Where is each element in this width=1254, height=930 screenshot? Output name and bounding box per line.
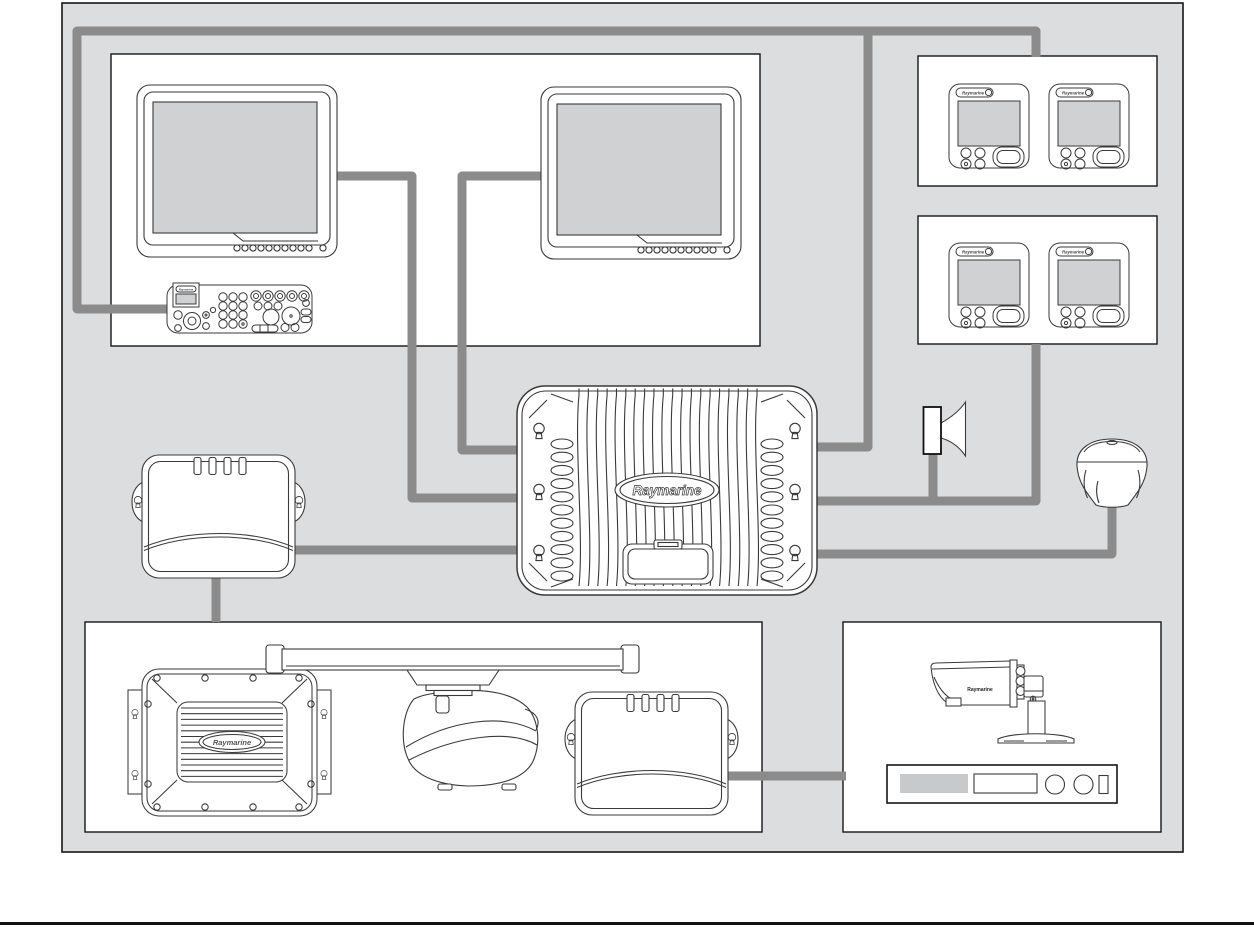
radar-array-bar <box>282 649 623 670</box>
multifunction-display-1 <box>137 85 337 257</box>
sounder-module <box>132 455 305 578</box>
video-player-display <box>900 774 968 793</box>
processor-unit: Raymarine <box>517 386 817 595</box>
keyboard: Raymarine <box>167 283 312 333</box>
instrument-display-1 <box>949 84 1029 169</box>
camera-brand-label: Raymarine <box>967 687 993 693</box>
radar-interface-box: Raymarine <box>128 669 331 816</box>
gps-antenna <box>1077 439 1147 507</box>
page-footer-rule <box>0 922 1254 925</box>
radar-interface-brand-label: Raymarine <box>213 738 251 747</box>
processor-brand-label: Raymarine <box>632 483 702 498</box>
manual-page: Raymarine <box>0 0 1254 930</box>
instrument-display-3 <box>949 243 1029 328</box>
keyboard-brand-label: Raymarine <box>179 287 194 291</box>
processor-card-door <box>623 544 713 584</box>
remote-module <box>565 692 738 815</box>
instrument-display-2 <box>1049 84 1129 169</box>
video-player <box>887 765 1117 803</box>
multifunction-display-2 <box>541 87 741 259</box>
camera-mount-pole <box>1028 701 1045 734</box>
instrument-display-4 <box>1049 243 1129 328</box>
camera-mount-base <box>998 734 1074 743</box>
